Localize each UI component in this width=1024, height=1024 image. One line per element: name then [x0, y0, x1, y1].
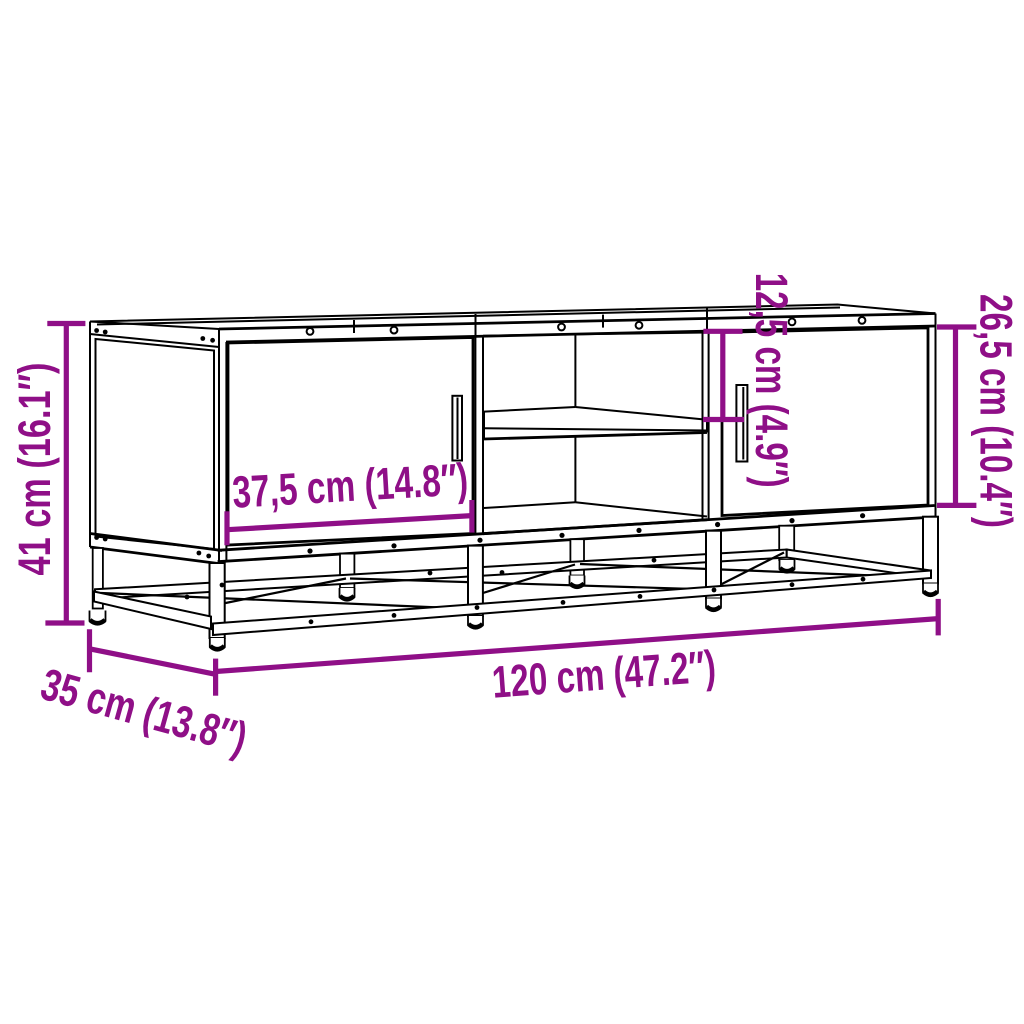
svg-text:12,5 cm (4.9″): 12,5 cm (4.9″): [746, 273, 797, 488]
svg-text:41 cm (16.1″): 41 cm (16.1″): [9, 363, 60, 576]
svg-text:26,5 cm (10.4″): 26,5 cm (10.4″): [971, 294, 1022, 528]
